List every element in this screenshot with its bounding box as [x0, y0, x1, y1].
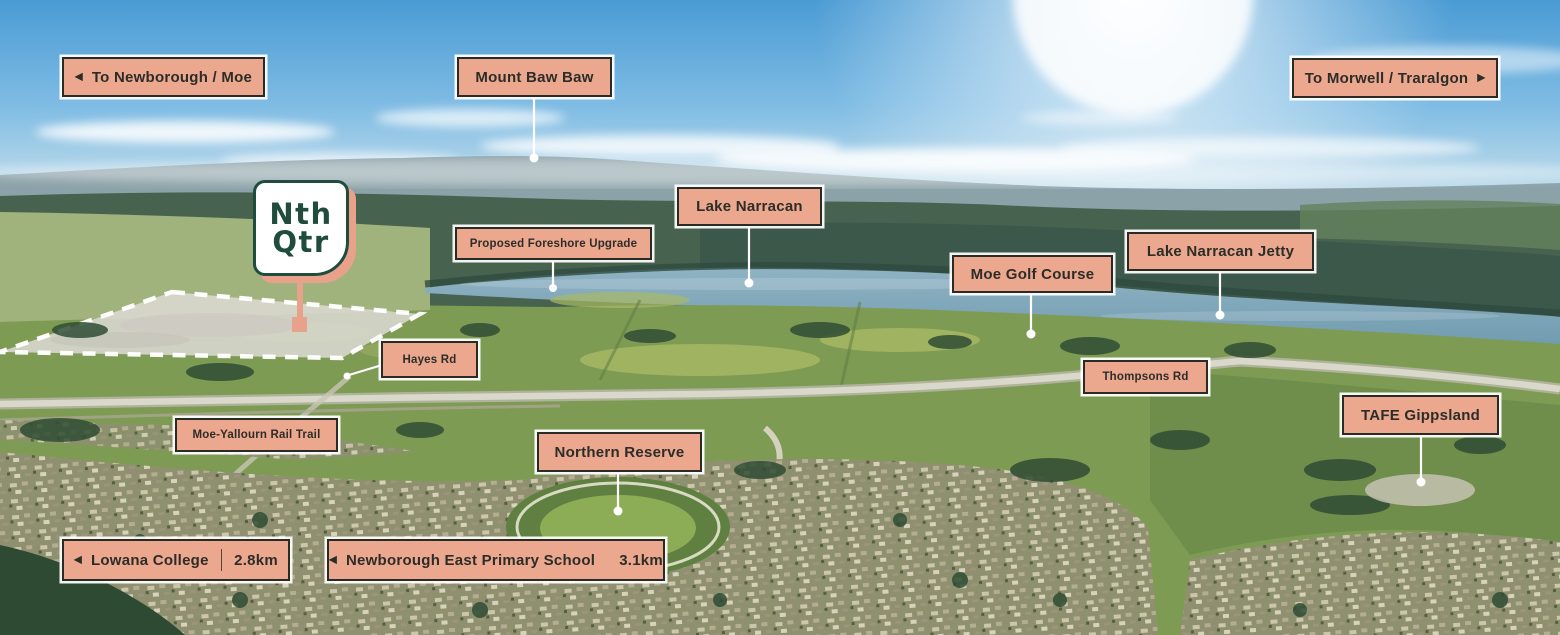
- left-arrow-icon: ◀: [75, 73, 83, 83]
- sign-proposed-foreshore-upgrade: Proposed Foreshore Upgrade: [455, 227, 652, 260]
- sign-label: Lake Narracan: [696, 198, 803, 215]
- logo-line2: Qtr: [272, 228, 329, 256]
- sign-label: To Newborough / Moe: [92, 69, 252, 86]
- sign-moe-yallourn-rail-trail: Moe-Yallourn Rail Trail: [175, 418, 338, 452]
- logo-line1: Nth: [269, 200, 332, 228]
- sign-label: Lake Narracan Jetty: [1147, 243, 1294, 260]
- sign-label: Northern Reserve: [555, 444, 685, 461]
- sign-label: Newborough East Primary School: [346, 552, 595, 569]
- sign-mount-baw-baw: Mount Baw Baw: [457, 57, 612, 97]
- sign-hayes-rd: Hayes Rd: [381, 341, 478, 378]
- sign-label: To Morwell / Traralgon: [1305, 70, 1469, 87]
- sign-newborough-east-primary: ◀ Newborough East Primary School 3.1km: [327, 539, 665, 581]
- sign-label: Lowana College: [91, 552, 209, 569]
- sign-label: TAFE Gippsland: [1361, 407, 1480, 424]
- aerial-masterplan-image: Nth Qtr ◀ To Newborough / Moe Mount Baw …: [0, 0, 1560, 635]
- left-arrow-icon: ◀: [329, 556, 337, 566]
- sign-distance: 2.8km: [234, 552, 278, 569]
- distance-divider: [221, 549, 223, 571]
- sign-label: Moe Golf Course: [971, 266, 1095, 283]
- sign-label: Hayes Rd: [402, 354, 456, 366]
- sign-lowana-college: ◀ Lowana College 2.8km: [62, 539, 290, 581]
- sign-label: Mount Baw Baw: [475, 69, 593, 86]
- sign-distance: 3.1km: [619, 552, 663, 569]
- sign-lake-narracan-jetty: Lake Narracan Jetty: [1127, 232, 1314, 271]
- sign-to-morwell-traralgon: To Morwell / Traralgon ▶: [1292, 58, 1498, 98]
- sign-northern-reserve: Northern Reserve: [537, 432, 702, 472]
- horizon-haze: [0, 158, 1560, 186]
- logo-box: Nth Qtr: [253, 180, 349, 276]
- sign-tafe-gippsland: TAFE Gippsland: [1342, 395, 1499, 435]
- sign-thompsons-rd: Thompsons Rd: [1083, 360, 1208, 394]
- nthqtr-logo: Nth Qtr: [253, 180, 349, 276]
- sign-label: Thompsons Rd: [1102, 371, 1188, 383]
- sign-to-newborough-moe: ◀ To Newborough / Moe: [62, 57, 265, 97]
- sign-lake-narracan: Lake Narracan: [677, 187, 822, 226]
- left-arrow-icon: ◀: [74, 556, 82, 566]
- sign-label: Moe-Yallourn Rail Trail: [193, 429, 321, 441]
- sign-label: Proposed Foreshore Upgrade: [470, 238, 638, 250]
- sign-moe-golf-course: Moe Golf Course: [952, 255, 1113, 293]
- right-arrow-icon: ▶: [1477, 74, 1485, 84]
